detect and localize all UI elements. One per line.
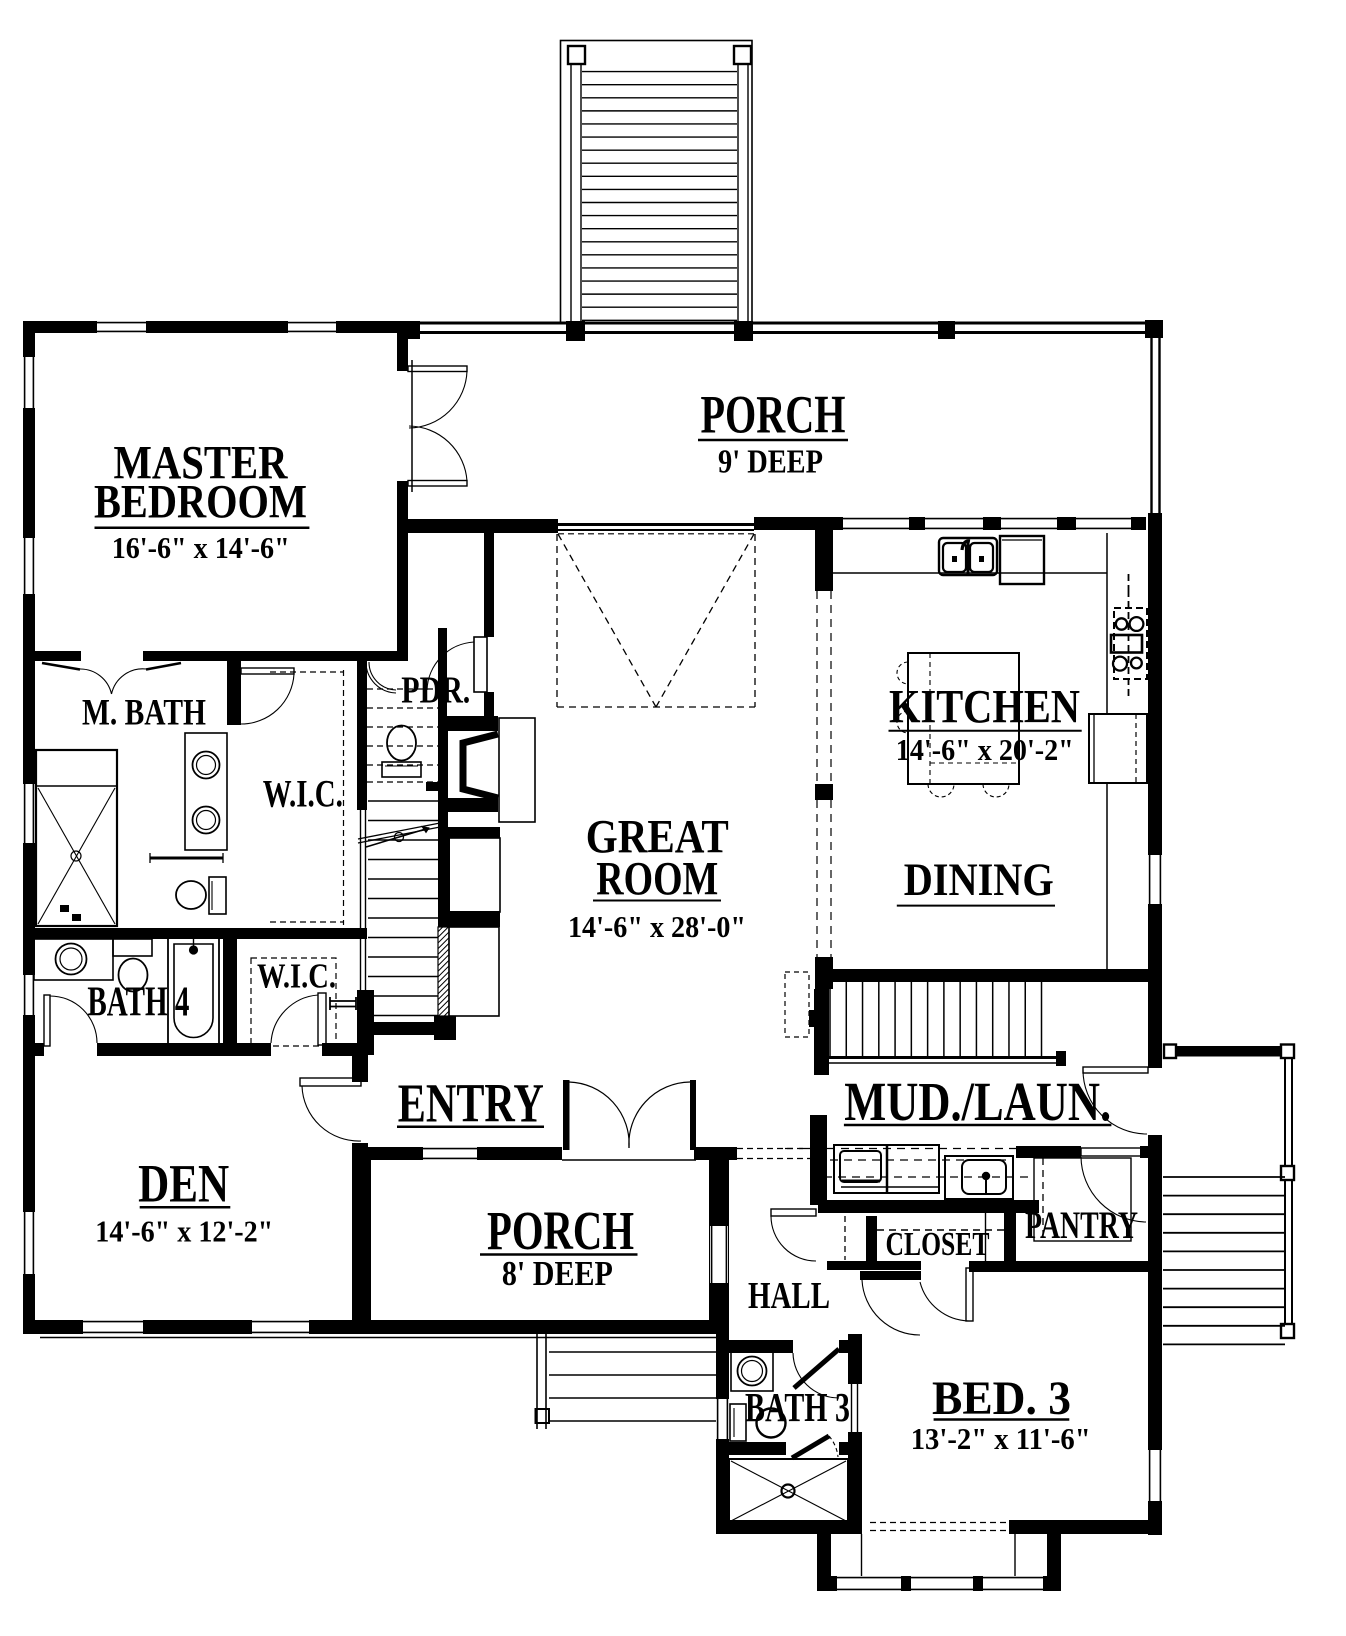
svg-text:BED. 3: BED. 3 — [932, 1372, 1071, 1425]
svg-text:16'-6" x 14'-6": 16'-6" x 14'-6" — [112, 530, 290, 565]
svg-text:13'-2" x 11'-6": 13'-2" x 11'-6" — [911, 1421, 1091, 1456]
svg-text:DEN: DEN — [138, 1153, 229, 1213]
svg-text:PORCH: PORCH — [701, 385, 846, 445]
svg-text:BEDROOM: BEDROOM — [94, 475, 307, 528]
svg-text:HALL: HALL — [748, 1275, 830, 1317]
svg-text:PANTRY: PANTRY — [1025, 1204, 1138, 1247]
svg-text:14'-6" x 20'-2": 14'-6" x 20'-2" — [896, 732, 1074, 767]
svg-text:M. BATH: M. BATH — [82, 693, 206, 734]
svg-text:KITCHEN: KITCHEN — [889, 680, 1080, 733]
svg-text:MUD./LAUN.: MUD./LAUN. — [844, 1071, 1111, 1132]
svg-text:BATH 4: BATH 4 — [87, 980, 189, 1026]
svg-text:ROOM: ROOM — [596, 853, 718, 906]
svg-text:W.I.C.: W.I.C. — [257, 956, 336, 995]
svg-text:ENTRY: ENTRY — [398, 1072, 544, 1133]
svg-text:W.I.C.: W.I.C. — [263, 773, 343, 816]
svg-text:PDR.: PDR. — [401, 670, 470, 712]
svg-text:CLOSET: CLOSET — [886, 1226, 990, 1263]
svg-text:BATH 3: BATH 3 — [745, 1384, 850, 1430]
svg-text:DINING: DINING — [904, 854, 1054, 906]
svg-text:14'-6" x 12'-2": 14'-6" x 12'-2" — [95, 1214, 273, 1249]
svg-text:9' DEEP: 9' DEEP — [718, 444, 823, 481]
svg-text:14'-6" x 28'-0": 14'-6" x 28'-0" — [568, 909, 746, 944]
svg-text:PORCH: PORCH — [487, 1200, 634, 1261]
svg-text:8' DEEP: 8' DEEP — [502, 1254, 613, 1293]
